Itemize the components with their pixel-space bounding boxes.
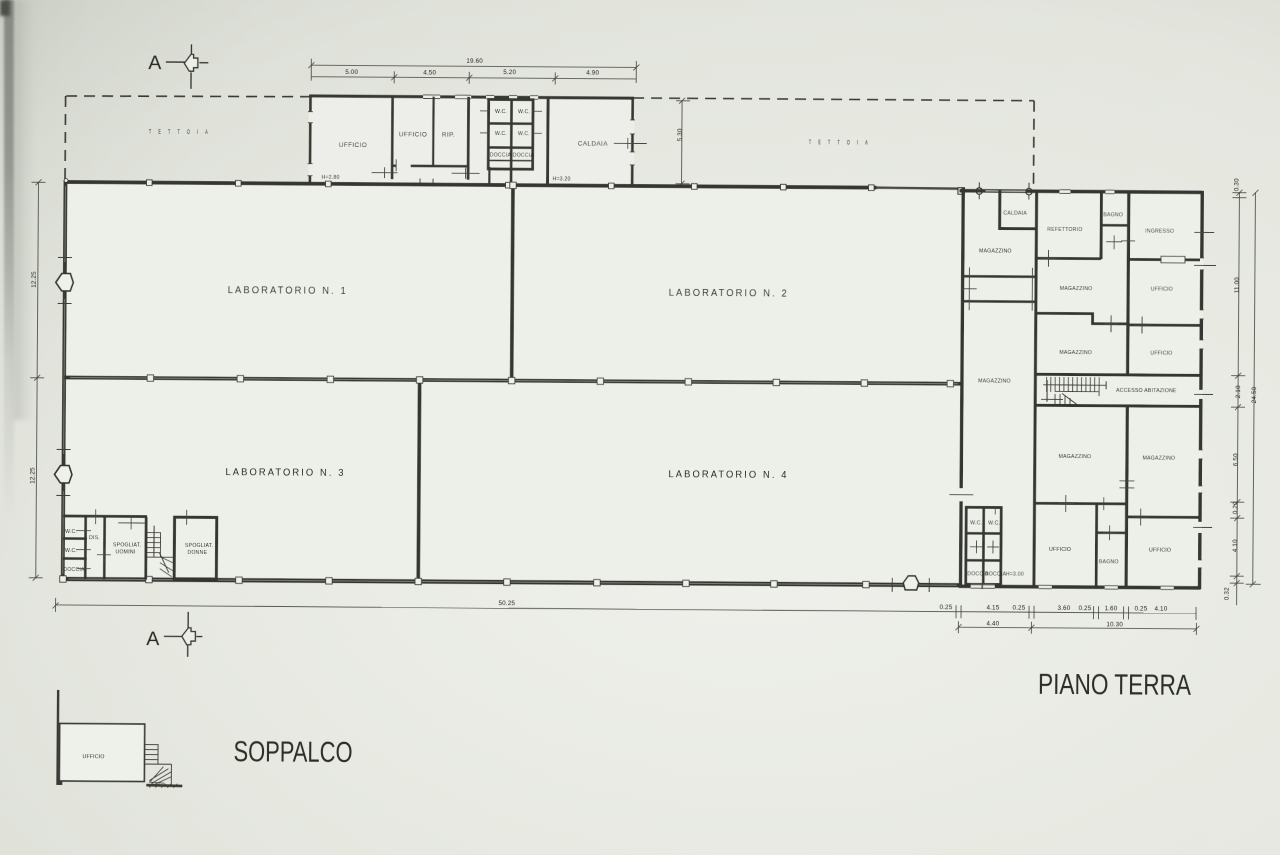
svg-text:4.15: 4.15 xyxy=(987,604,1000,611)
svg-text:UFFICIO: UFFICIO xyxy=(1049,547,1071,553)
svg-text:A: A xyxy=(146,628,159,650)
svg-text:INGRESSO: INGRESSO xyxy=(1145,229,1174,235)
svg-text:0.25: 0.25 xyxy=(1013,605,1026,612)
svg-text:W.C.: W.C. xyxy=(65,529,77,535)
svg-text:W.C.: W.C. xyxy=(495,109,507,115)
svg-text:UFFICIO: UFFICIO xyxy=(339,142,367,149)
svg-text:UOMINI: UOMINI xyxy=(115,549,135,555)
svg-text:H=3.20: H=3.20 xyxy=(553,176,571,182)
svg-text:5.00: 5.00 xyxy=(345,69,358,76)
svg-text:MAGAZZINO: MAGAZZINO xyxy=(1059,454,1092,460)
svg-text:W.C.: W.C. xyxy=(65,548,77,554)
svg-text:H=2.80: H=2.80 xyxy=(322,175,340,181)
svg-text:MAGAZZINO: MAGAZZINO xyxy=(1059,350,1092,356)
svg-text:DOCCIA: DOCCIA xyxy=(63,567,85,573)
svg-text:W.C.: W.C. xyxy=(495,131,507,137)
svg-text:DOCCIA: DOCCIA xyxy=(985,571,1007,577)
svg-text:4.90: 4.90 xyxy=(586,70,599,77)
svg-text:0.25: 0.25 xyxy=(940,604,953,611)
svg-text:H=3.00: H=3.00 xyxy=(1006,572,1024,578)
svg-text:UFFICIO: UFFICIO xyxy=(82,754,104,760)
svg-text:BAGNO: BAGNO xyxy=(1099,559,1119,565)
svg-text:12.25: 12.25 xyxy=(31,271,38,288)
svg-text:CALDAIA: CALDAIA xyxy=(578,141,609,148)
svg-text:PIANO TERRA: PIANO TERRA xyxy=(1038,669,1192,702)
svg-text:MAGAZZINO: MAGAZZINO xyxy=(1143,456,1176,462)
svg-text:0.20: 0.20 xyxy=(1232,501,1239,514)
svg-text:W.C.: W.C. xyxy=(988,520,1000,526)
svg-text:ACCESSO ABITAZIONE: ACCESSO ABITAZIONE xyxy=(1116,388,1177,394)
svg-text:0.30: 0.30 xyxy=(1233,178,1240,191)
svg-text:SPOGLIAT.: SPOGLIAT. xyxy=(185,543,213,549)
svg-text:DONNE: DONNE xyxy=(187,550,207,556)
svg-text:1.60: 1.60 xyxy=(1105,605,1118,612)
svg-text:50.25: 50.25 xyxy=(499,600,516,607)
svg-text:19.60: 19.60 xyxy=(466,58,483,65)
svg-text:MAGAZZINO: MAGAZZINO xyxy=(979,248,1012,254)
svg-text:T E T T O I A: T E T T O I A xyxy=(149,129,211,136)
svg-text:LABORATORIO N. 1: LABORATORIO N. 1 xyxy=(228,285,348,297)
svg-text:4.10: 4.10 xyxy=(1232,539,1239,552)
svg-text:24.50: 24.50 xyxy=(1251,386,1258,403)
svg-text:CALDAIA: CALDAIA xyxy=(1003,211,1027,217)
svg-text:4.40: 4.40 xyxy=(986,620,999,627)
svg-text:T E T T O I A: T E T T O I A xyxy=(809,139,871,146)
svg-text:RIP.: RIP. xyxy=(442,132,455,139)
svg-text:UFFICIO: UFFICIO xyxy=(1151,287,1173,293)
svg-text:UFFICIO: UFFICIO xyxy=(399,131,427,138)
svg-text:4.50: 4.50 xyxy=(423,69,436,76)
svg-text:MAGAZZINO: MAGAZZINO xyxy=(978,378,1011,384)
svg-text:LABORATORIO N. 4: LABORATORIO N. 4 xyxy=(668,469,788,481)
svg-text:MAGAZZINO: MAGAZZINO xyxy=(1060,286,1093,292)
svg-text:A: A xyxy=(148,52,161,74)
svg-text:W.C.: W.C. xyxy=(518,109,530,115)
svg-text:0.25: 0.25 xyxy=(1079,605,1092,612)
svg-text:3.60: 3.60 xyxy=(1058,605,1071,612)
svg-text:REFETTORIO: REFETTORIO xyxy=(1047,227,1082,233)
svg-text:LABORATORIO N. 3: LABORATORIO N. 3 xyxy=(225,467,345,479)
svg-text:W.C.: W.C. xyxy=(970,520,982,526)
svg-text:5.30: 5.30 xyxy=(677,128,684,141)
svg-text:LABORATORIO N. 2: LABORATORIO N. 2 xyxy=(669,288,789,300)
svg-text:12.25: 12.25 xyxy=(29,467,36,484)
svg-text:W.C.: W.C. xyxy=(518,131,530,137)
svg-text:4.10: 4.10 xyxy=(1155,606,1168,613)
svg-text:BAGNO: BAGNO xyxy=(1103,212,1123,218)
svg-text:2.10: 2.10 xyxy=(1235,385,1242,398)
svg-text:6.50: 6.50 xyxy=(1233,453,1240,466)
svg-text:SPOGLIAT.: SPOGLIAT. xyxy=(113,542,141,548)
svg-text:5.20: 5.20 xyxy=(503,69,516,76)
svg-text:DIS.: DIS. xyxy=(89,535,100,541)
svg-text:SOPPALCO: SOPPALCO xyxy=(233,736,352,769)
svg-text:11.00: 11.00 xyxy=(1234,277,1241,293)
svg-text:UFFICIO: UFFICIO xyxy=(1149,548,1171,554)
svg-text:DOCCIA: DOCCIA xyxy=(513,153,535,159)
svg-text:0.32: 0.32 xyxy=(1224,587,1231,600)
svg-text:UFFICIO: UFFICIO xyxy=(1150,351,1172,357)
svg-text:10.30: 10.30 xyxy=(1106,621,1123,628)
svg-text:DOCCIA: DOCCIA xyxy=(490,152,512,158)
svg-text:0.25: 0.25 xyxy=(1135,605,1148,612)
